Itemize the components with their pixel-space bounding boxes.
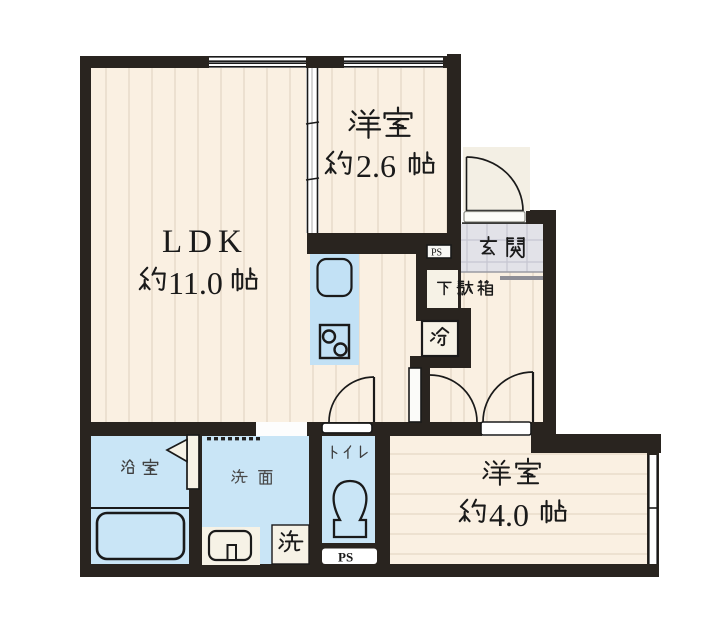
svg-text:LDK: LDK	[162, 224, 248, 260]
svg-text:11.0: 11.0	[168, 265, 223, 301]
svg-text:PS: PS	[338, 550, 353, 565]
svg-text:4.0: 4.0	[489, 497, 529, 533]
svg-text:2.6: 2.6	[356, 148, 396, 184]
svg-text:PS: PS	[431, 248, 442, 259]
